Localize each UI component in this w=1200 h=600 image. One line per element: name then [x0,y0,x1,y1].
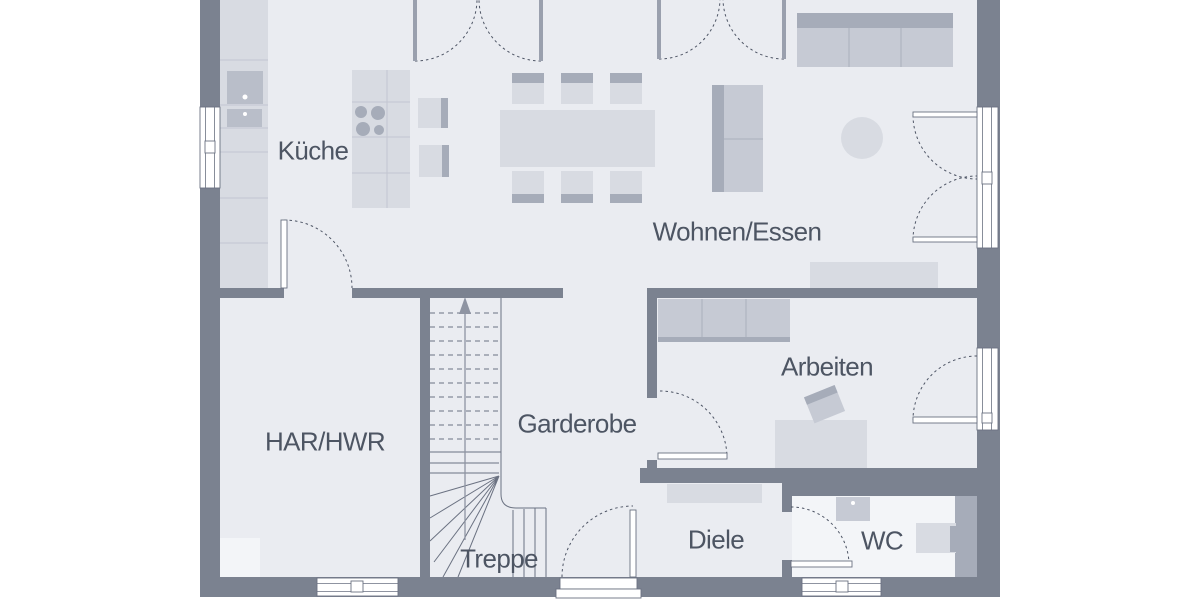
room-label-arbeiten: Arbeiten [781,352,873,383]
dining-chair [610,73,642,104]
room-label-diele: Diele [688,525,744,556]
toilet [836,497,870,521]
side-table [841,117,883,159]
office-shelf [658,299,790,342]
room-label-wohnen-essen: Wohnen/Essen [653,217,822,248]
window-wc-bottom [802,578,881,596]
kitchen-counter [218,0,268,288]
desk [775,420,867,468]
sofa [797,13,953,67]
floor-plan: Küche Wohnen/Essen HAR/HWR Garderobe Tre… [0,0,1200,600]
room-label-kueche: Küche [278,136,349,167]
entrance-threshold [556,578,641,598]
utility-appliance [220,538,260,577]
window-utility-bottom [317,578,398,596]
floor-plan-drawing [0,0,1200,600]
dining-chair [512,73,544,104]
washbasin [916,523,963,553]
living-sideboard [810,262,938,288]
hall-sideboard [667,484,762,503]
dining-chair [610,171,642,203]
room-label-treppe: Treppe [460,544,538,575]
tv-cabinet [712,85,763,192]
window-kitchen-left [200,107,220,188]
french-door-frame [977,107,998,248]
room-label-garderobe: Garderobe [518,409,637,440]
drawer-appliance [227,109,262,127]
kitchen-island [352,70,410,208]
dining-chair [561,171,593,203]
dining-table [500,110,655,167]
room-label-wc: WC [861,526,903,557]
dining-chair [512,171,544,203]
dining-chair [561,73,593,104]
window-office-right [977,348,998,430]
room-label-har-hwr: HAR/HWR [265,427,385,458]
